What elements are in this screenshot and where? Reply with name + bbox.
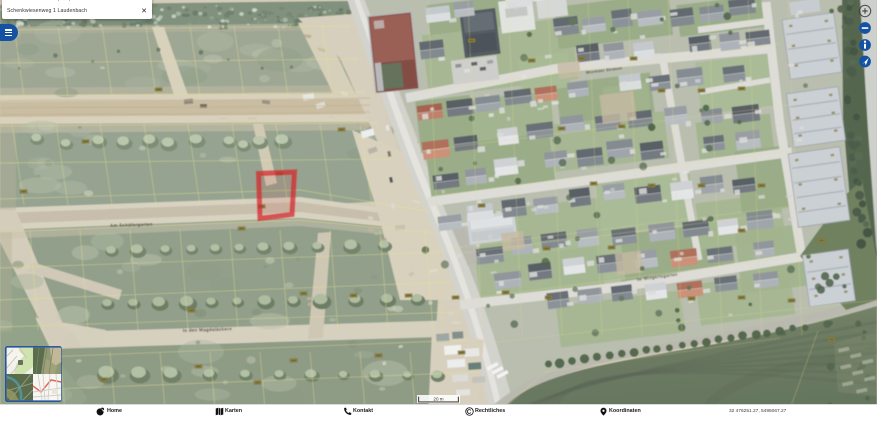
svg-text:20 m: 20 m: [433, 396, 443, 401]
